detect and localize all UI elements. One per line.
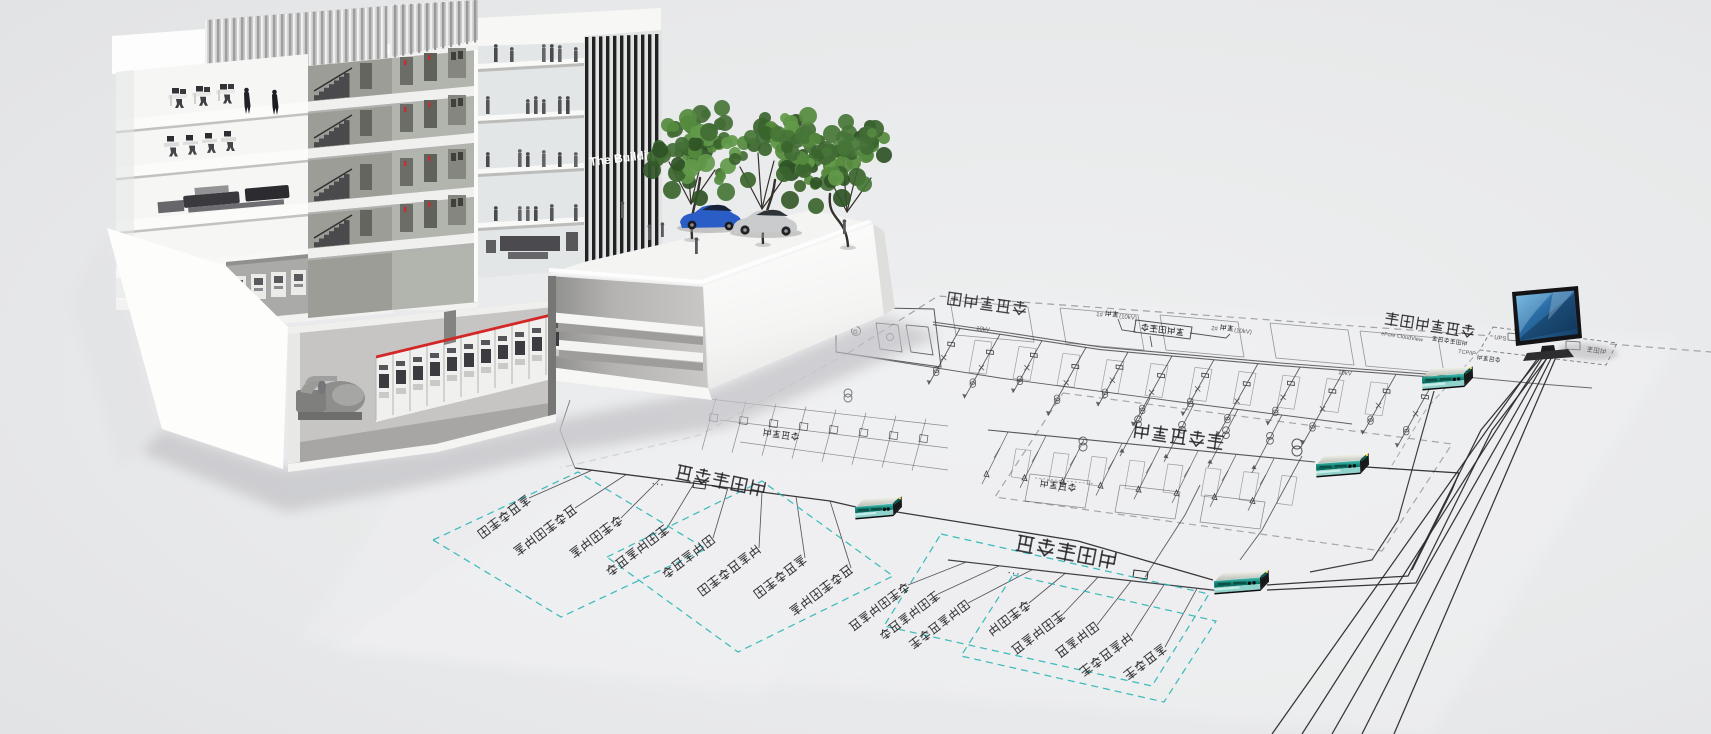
svg-text:1#: 1#: [1096, 312, 1104, 319]
svg-text:2#: 2#: [1211, 326, 1219, 333]
